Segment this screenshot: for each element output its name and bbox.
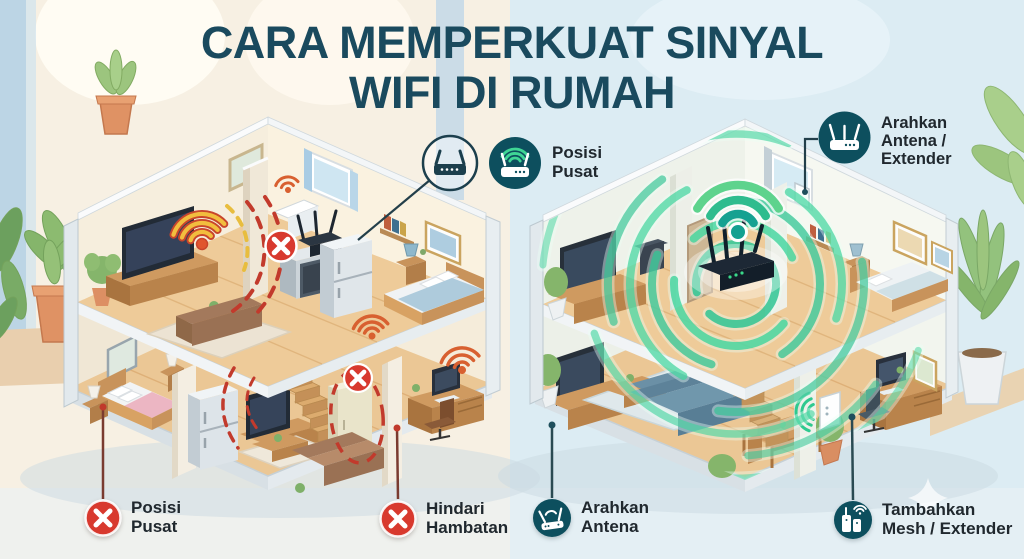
- callout-arahkan-antena-extender: Arahkan Antena / Extender: [817, 110, 952, 168]
- label-line: Antena /: [881, 132, 952, 150]
- callout-label: Posisi Pusat: [131, 499, 181, 536]
- label-line: Hindari: [426, 500, 508, 519]
- bad-x-icon: [84, 499, 122, 537]
- fridge-lower: [188, 384, 238, 470]
- label-line: Arahkan: [881, 114, 952, 132]
- router-signal-icon: [487, 135, 543, 191]
- mesh-extender-icon: [833, 500, 873, 540]
- router-outline-icon: [420, 133, 480, 193]
- page-title: CARA MEMPERKUAT SINYAL WIFI DI RUMAH: [0, 18, 1024, 119]
- label-line: Extender: [881, 150, 952, 168]
- callout-posisi-pusat-bottom: Posisi Pusat: [84, 499, 181, 537]
- wifi-infographic: CARA MEMPERKUAT SINYAL WIFI DI RUMAH Pos…: [0, 0, 1024, 559]
- lamp: [404, 244, 418, 256]
- callout-tambahkan-mesh: Tambahkan Mesh / Extender: [833, 500, 1012, 540]
- callout-label: Hindari Hambatan: [426, 500, 508, 537]
- router-antenna-icon: [817, 110, 872, 165]
- label-line: Mesh / Extender: [882, 520, 1012, 539]
- callout-posisi-pusat-top: Posisi Pusat: [420, 133, 602, 193]
- callout-arahkan-antena: Arahkan Antena: [532, 498, 649, 538]
- callout-label: Posisi Pusat: [552, 144, 602, 181]
- bad-x-icon: [379, 500, 417, 538]
- label-line: Pusat: [552, 163, 602, 182]
- callout-label: Arahkan Antena: [581, 499, 649, 536]
- curtain: [304, 148, 312, 192]
- bad-x-marker-wall: [266, 231, 297, 262]
- label-line: Antena: [581, 518, 649, 537]
- label-line: Posisi: [552, 144, 602, 163]
- label-line: Pusat: [131, 518, 181, 537]
- label-line: Posisi: [131, 499, 181, 518]
- router-tilt-icon: [532, 498, 572, 538]
- callout-hindari-hambatan: Hindari Hambatan: [379, 500, 508, 538]
- fridge-upper: [334, 240, 372, 318]
- callout-label: Arahkan Antena / Extender: [881, 114, 952, 168]
- bad-x-marker-cabinet: [344, 364, 372, 392]
- title-line-1: CARA MEMPERKUAT SINYAL: [0, 18, 1024, 68]
- label-line: Tambahkan: [882, 501, 1012, 520]
- label-line: Hambatan: [426, 519, 508, 538]
- label-line: Arahkan: [581, 499, 649, 518]
- callout-label: Tambahkan Mesh / Extender: [882, 501, 1012, 538]
